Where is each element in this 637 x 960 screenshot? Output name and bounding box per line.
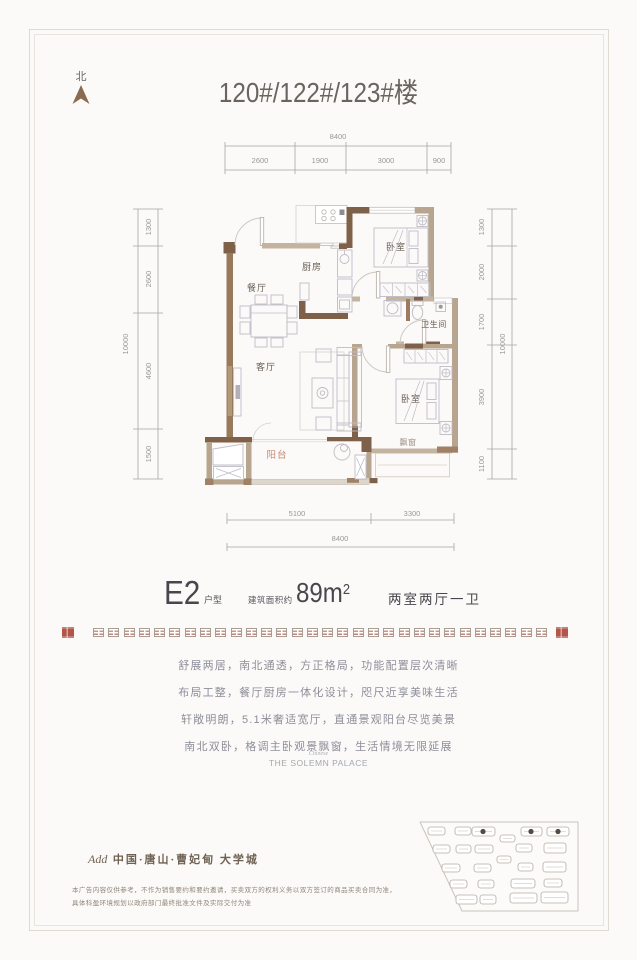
svg-text:2000: 2000 [477, 264, 486, 281]
svg-text:1300: 1300 [477, 219, 486, 236]
svg-text:阳台: 阳台 [266, 449, 287, 461]
svg-text:客厅: 客厅 [256, 361, 276, 372]
svg-text:飘窗: 飘窗 [400, 437, 417, 447]
svg-text:2600: 2600 [144, 271, 153, 288]
svg-text:2600: 2600 [252, 156, 269, 165]
svg-text:1900: 1900 [312, 156, 329, 165]
svg-text:北: 北 [76, 70, 87, 83]
svg-text:1300: 1300 [144, 219, 153, 236]
svg-text:4600: 4600 [144, 363, 153, 380]
svg-text:8400: 8400 [330, 132, 347, 141]
svg-text:10000: 10000 [121, 334, 130, 355]
svg-text:3000: 3000 [378, 156, 395, 165]
svg-text:5100: 5100 [289, 509, 306, 518]
svg-text:厨房: 厨房 [302, 261, 322, 272]
svg-text:10000: 10000 [498, 334, 507, 355]
svg-text:3900: 3900 [477, 389, 486, 406]
svg-text:900: 900 [433, 156, 446, 165]
svg-text:卫生间: 卫生间 [421, 319, 447, 329]
svg-text:卧室: 卧室 [401, 393, 421, 404]
svg-text:1700: 1700 [477, 314, 486, 331]
svg-text:1500: 1500 [144, 446, 153, 463]
svg-text:餐厅: 餐厅 [247, 282, 267, 293]
svg-text:1100: 1100 [477, 456, 486, 472]
svg-text:3300: 3300 [404, 509, 421, 518]
svg-text:8400: 8400 [332, 534, 349, 543]
